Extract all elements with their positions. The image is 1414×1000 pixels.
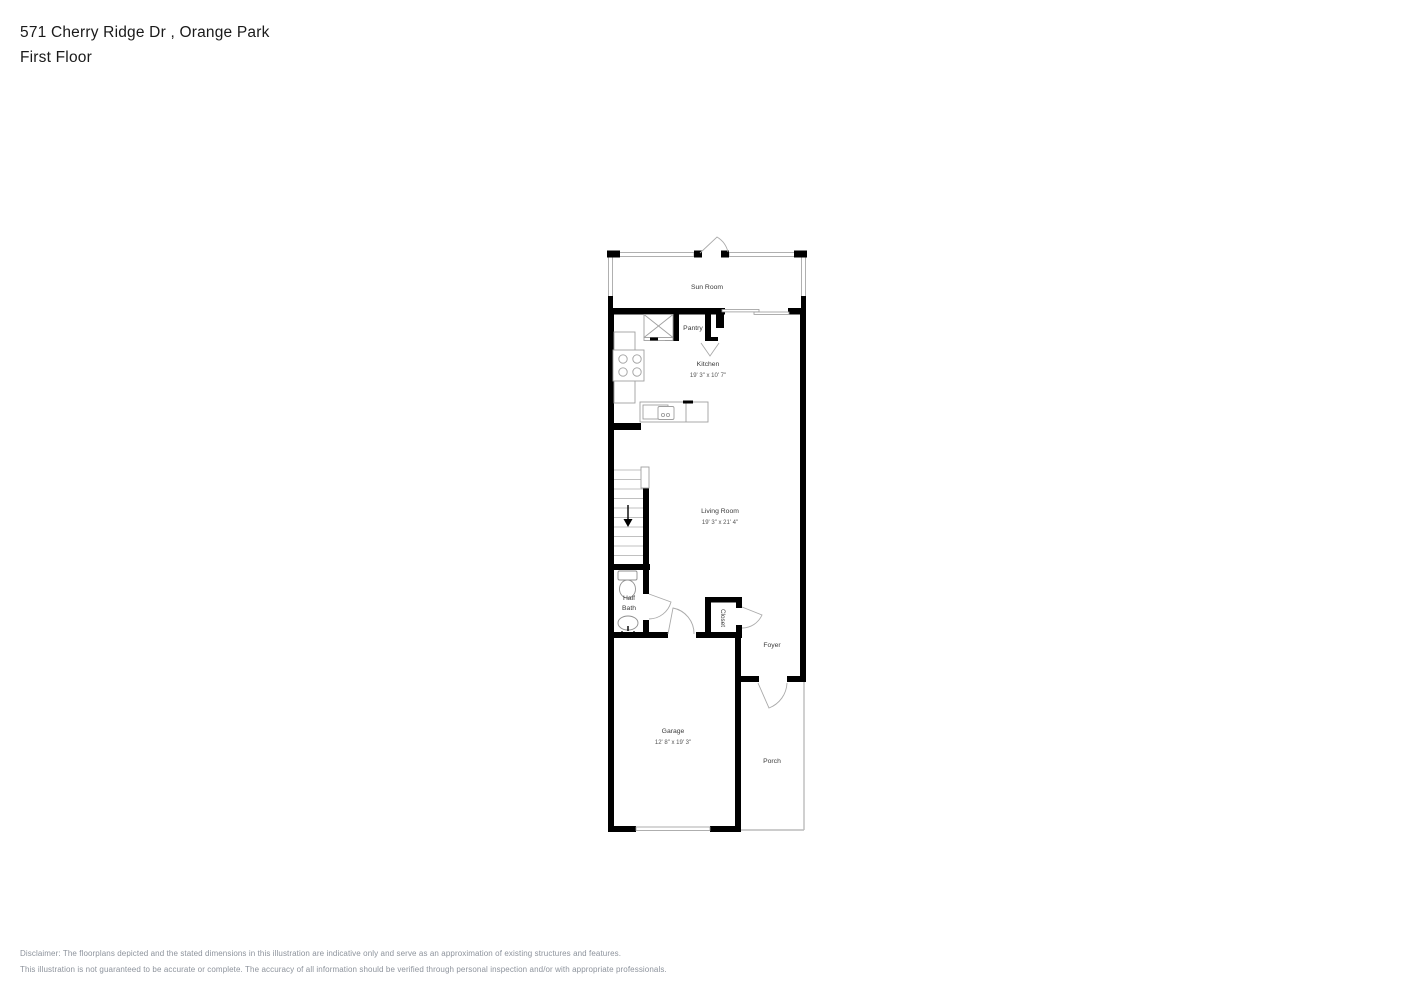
disclaimer: Disclaimer: The floorplans depicted and … bbox=[20, 946, 667, 977]
dims-garage: 12' 8" x 19' 3" bbox=[655, 740, 691, 746]
counter-tick bbox=[683, 401, 693, 404]
wall-right-outer bbox=[800, 308, 806, 682]
toilet-tank bbox=[618, 571, 637, 580]
wall-closet-right-upper bbox=[736, 597, 742, 608]
front-door-arc bbox=[758, 683, 787, 708]
wall-post bbox=[608, 296, 613, 309]
porch-outline bbox=[741, 682, 804, 830]
openings bbox=[636, 310, 789, 831]
wall-closet-left bbox=[705, 597, 711, 638]
wall-post bbox=[794, 251, 807, 258]
label-half-bath-line2: Bath bbox=[622, 605, 636, 612]
wall-kitchen-top bbox=[608, 308, 725, 315]
garage-door bbox=[636, 827, 710, 831]
door-jamb bbox=[694, 251, 702, 258]
burner bbox=[633, 368, 641, 376]
wall-pantry-foot-right bbox=[705, 337, 718, 341]
disclaimer-line-2: This illustration is not guaranteed to b… bbox=[20, 962, 667, 978]
sliding-door-panel bbox=[722, 310, 759, 312]
disclaimer-line-1: Disclaimer: The floorplans depicted and … bbox=[20, 946, 667, 962]
label-pantry: Pantry bbox=[683, 325, 703, 332]
wall-stub bbox=[716, 314, 724, 328]
sliding-door-panel bbox=[754, 312, 789, 314]
label-half-bath-line1: Half bbox=[623, 595, 635, 602]
wall-garage-bottom-right bbox=[710, 826, 741, 832]
wall-kitchen-stub bbox=[608, 423, 641, 430]
stair-rail bbox=[641, 467, 649, 488]
window-wall-top-left bbox=[609, 253, 694, 257]
window-wall-left bbox=[609, 256, 613, 298]
utility-box-base bbox=[644, 338, 673, 341]
label-garage: Garage bbox=[662, 728, 685, 735]
sink-basin bbox=[661, 413, 664, 416]
floor-subtitle: First Floor bbox=[20, 45, 270, 70]
wall-closet-right-lower bbox=[736, 625, 742, 638]
label-kitchen: Kitchen bbox=[697, 361, 720, 368]
halfbath-door-arc bbox=[649, 594, 671, 619]
burner bbox=[633, 355, 641, 363]
wall-front-right bbox=[787, 676, 806, 682]
label-closet: Closet bbox=[719, 609, 726, 627]
window-wall-right bbox=[802, 256, 806, 298]
walls bbox=[607, 251, 807, 833]
kitchen-sink bbox=[658, 407, 674, 420]
closet-door-arc bbox=[742, 607, 762, 628]
plan-header: 571 Cherry Ridge Dr , Orange Park First … bbox=[20, 20, 270, 70]
label-sun-room: Sun Room bbox=[691, 284, 723, 291]
pantry-bifold-door bbox=[701, 343, 719, 356]
wall-halfbath-right-upper bbox=[643, 564, 649, 594]
burner bbox=[619, 355, 627, 363]
range bbox=[613, 350, 644, 381]
bathroom-fixtures bbox=[618, 571, 638, 635]
label-foyer: Foyer bbox=[763, 642, 781, 649]
floorplan-drawing: Sun Room Pantry Kitchen 19' 3" x 10' 7" … bbox=[595, 225, 820, 845]
label-porch: Porch bbox=[763, 758, 781, 765]
wall-garage-bottom-left bbox=[608, 826, 636, 832]
window-wall-top-right bbox=[729, 253, 795, 257]
wall-stairs bbox=[643, 487, 649, 568]
dims-kitchen: 19' 3" x 10' 7" bbox=[690, 373, 726, 379]
wall-garage-right bbox=[735, 638, 741, 832]
wall-post bbox=[607, 251, 620, 258]
wall-garage-top-left bbox=[608, 632, 668, 638]
dims-living-room: 19' 3" x 21' 4" bbox=[702, 520, 738, 526]
wall-front-left bbox=[735, 676, 759, 682]
burner bbox=[619, 368, 627, 376]
garage-hall-door-arc bbox=[668, 608, 694, 634]
sink-basin bbox=[666, 413, 669, 416]
label-living-room: Living Room bbox=[701, 508, 739, 515]
wall-pantry-right bbox=[705, 314, 711, 341]
wall-post bbox=[801, 296, 806, 309]
wall-pantry-left bbox=[673, 314, 679, 341]
utility-tick bbox=[650, 338, 658, 341]
sunroom-window-walls bbox=[609, 253, 806, 299]
address-title: 571 Cherry Ridge Dr , Orange Park bbox=[20, 20, 270, 45]
